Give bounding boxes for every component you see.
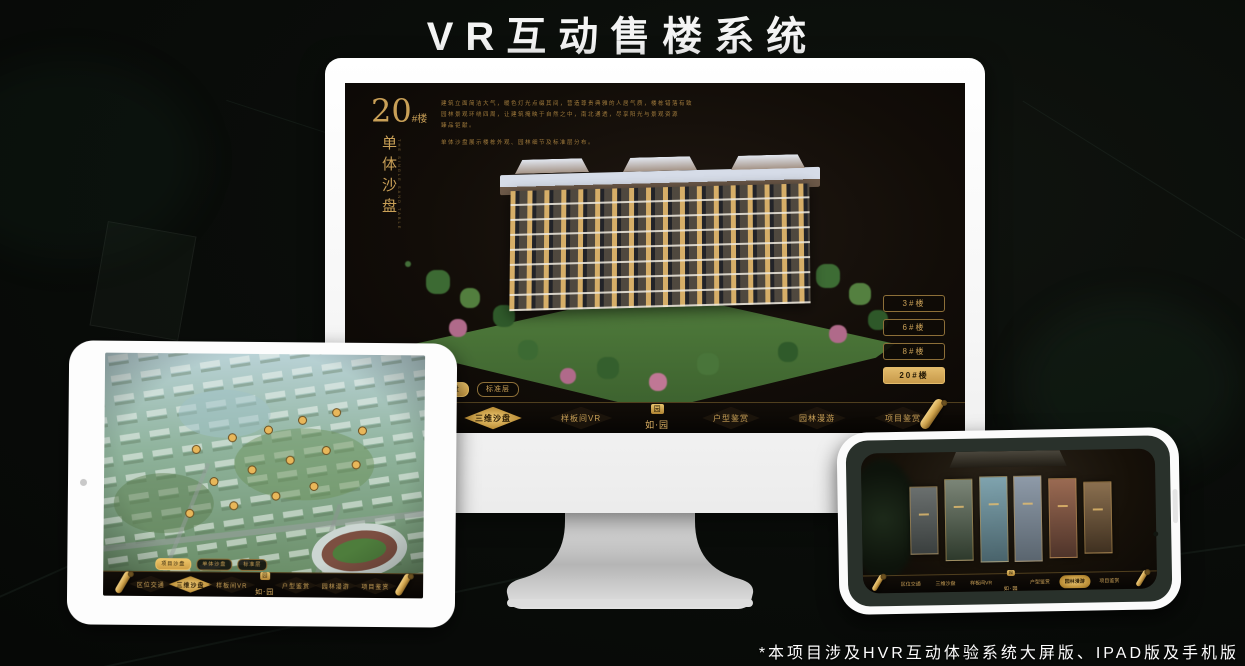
building-facade (509, 183, 810, 311)
tablet-device: 项目沙盘 单体沙盘 标准层 区位交通 三维沙盘 样板间VR 园 如·园 户型鉴赏… (67, 340, 457, 627)
gallery-panel[interactable] (979, 476, 1008, 562)
nav-item-3d-sandtable[interactable]: 三维沙盘 (469, 411, 517, 426)
brand-seal-icon: 园 (260, 571, 270, 579)
gallery-panel[interactable] (1048, 478, 1077, 558)
brand-name: 如·园 (645, 421, 669, 431)
gallery-panel[interactable] (1014, 475, 1043, 561)
nav-item-garden-roam[interactable]: 园林漫游 (318, 580, 354, 591)
brand-logo: 园 如·园 (255, 571, 274, 598)
poster-stage: VR互动售楼系统 20#楼 单体沙盘 THE SINGLE SAND TABLE… (0, 0, 1245, 666)
brand-name: 如·园 (1004, 586, 1019, 592)
building-roof-cap (515, 158, 589, 174)
phone-bottom-nav: 区位交通 三维沙盘 样板间VR 园 如·园 户型鉴赏 园林漫游 项目鉴赏 (863, 570, 1157, 593)
panel-caption (1093, 508, 1103, 510)
description-line: 园林景观环绕四周，让建筑掩映于自然之中，南北通透，尽享阳光与景观资源 (441, 110, 871, 121)
tablet-subtabs: 项目沙盘 单体沙盘 标准层 (155, 558, 267, 571)
bg-green-glow (0, 60, 200, 260)
nav-item-unit-gallery[interactable]: 户型鉴赏 (707, 411, 755, 426)
subtab-single-sandtable[interactable]: 单体沙盘 (196, 558, 232, 570)
nav-item-garden-roam[interactable]: 园林漫游 (1062, 577, 1088, 586)
subtab-standard-floor[interactable]: 标准层 (237, 559, 267, 571)
floor-button-6[interactable]: 6#楼 (883, 319, 945, 336)
subtab-project-sandtable[interactable]: 项目沙盘 (155, 558, 191, 570)
brand-name: 如·园 (255, 587, 274, 595)
floor-button-3[interactable]: 3#楼 (883, 295, 945, 312)
panel-caption (988, 503, 998, 505)
gallery-panel[interactable] (944, 479, 973, 561)
nav-item-3d-sandtable[interactable]: 三维沙盘 (932, 579, 958, 588)
building-number: 20 (371, 92, 412, 130)
description-line: 建筑立面简洁大气，暖色灯光点缀其间，营造尊贵典雅的人居气质，楼栋错落有致 (441, 99, 871, 110)
landscape-trees (405, 261, 411, 267)
description-line: 臻品钜献。 (441, 121, 871, 132)
nav-item-garden-roam[interactable]: 园林漫游 (793, 411, 841, 426)
nav-item-unit-gallery[interactable]: 户型鉴赏 (1027, 577, 1053, 586)
phone-camera-dot (1153, 531, 1158, 536)
nav-item-project-gallery[interactable]: 项目鉴赏 (1096, 576, 1122, 585)
footnote-text: *本项目涉及HVR互动体验系统大屏版、IPAD版及手机版 (759, 639, 1239, 663)
building-roof-cap (623, 156, 697, 172)
phone-side-button (1172, 489, 1178, 523)
brand-logo: 园 如·园 (645, 404, 669, 433)
bg-road-line (1023, 101, 1245, 261)
building-headline: 20#楼 (371, 95, 427, 127)
nav-item-location[interactable]: 区位交通 (133, 578, 169, 589)
building-roof-cap (731, 154, 805, 170)
floor-button-8[interactable]: 8#楼 (883, 343, 945, 360)
panel-caption (954, 506, 964, 508)
tablet-bottom-nav: 区位交通 三维沙盘 样板间VR 园 如·园 户型鉴赏 园林漫游 项目鉴赏 (103, 571, 423, 599)
tablet-screen: 项目沙盘 单体沙盘 标准层 区位交通 三维沙盘 样板间VR 园 如·园 户型鉴赏… (103, 353, 425, 599)
nav-item-showroom-vr[interactable]: 样板间VR (967, 578, 995, 587)
floor-button-column: 3#楼 6#楼 8#楼 20#楼 (883, 295, 945, 384)
monitor-stand (488, 511, 772, 611)
brand-seal-icon: 园 (651, 404, 664, 414)
building-3d-render[interactable] (405, 141, 905, 411)
panel-caption (919, 513, 929, 515)
nav-item-unit-gallery[interactable]: 户型鉴赏 (278, 580, 314, 591)
building-number-suffix: #楼 (412, 114, 428, 125)
brand-seal-icon: 园 (1007, 570, 1015, 576)
nav-item-3d-sandtable[interactable]: 三维沙盘 (172, 579, 208, 590)
panel-caption (1058, 505, 1068, 507)
panorama-gallery (909, 465, 1113, 573)
brand-logo: 园 如·园 (1004, 570, 1019, 594)
subtab-standard-floor[interactable]: 标准层 (477, 382, 519, 397)
phone-bezel: 区位交通 三维沙盘 样板间VR 园 如·园 户型鉴赏 园林漫游 项目鉴赏 (846, 435, 1173, 607)
building-subtitle-caption: THE SINGLE SAND TABLE (397, 139, 402, 230)
floor-button-20[interactable]: 20#楼 (883, 367, 945, 384)
phone-device: 区位交通 三维沙盘 样板间VR 园 如·园 户型鉴赏 园林漫游 项目鉴赏 (836, 427, 1181, 615)
tablet-camera-dot (80, 479, 87, 486)
nav-item-showroom-vr[interactable]: 样板间VR (555, 411, 607, 426)
nav-item-showroom-vr[interactable]: 样板间VR (212, 579, 251, 590)
page-title: VR互动售楼系统 (0, 4, 1245, 62)
nav-item-location[interactable]: 区位交通 (898, 579, 924, 588)
gallery-panel[interactable] (909, 486, 938, 554)
nav-item-project-gallery[interactable]: 项目鉴赏 (357, 580, 393, 591)
phone-screen: 区位交通 三维沙盘 样板间VR 园 如·园 户型鉴赏 园林漫游 项目鉴赏 (861, 448, 1157, 593)
panel-caption (1023, 503, 1033, 505)
gallery-panel[interactable] (1083, 481, 1112, 553)
